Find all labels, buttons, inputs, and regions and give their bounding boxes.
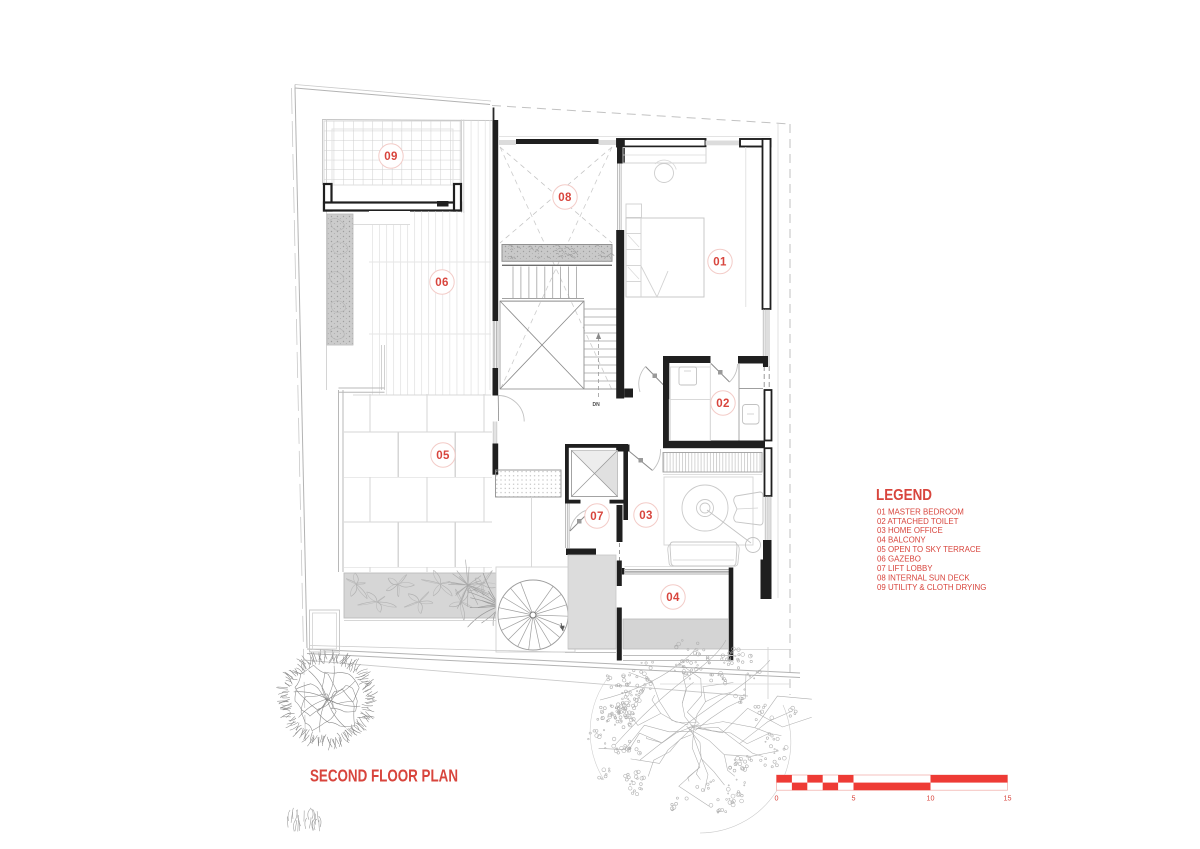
svg-text:08: 08 [558, 192, 572, 204]
svg-text:05: 05 [436, 450, 450, 462]
svg-text:01: 01 [713, 257, 727, 269]
svg-text:08 INTERNAL SUN DECK: 08 INTERNAL SUN DECK [877, 573, 970, 582]
svg-text:01 MASTER BEDROOM: 01 MASTER BEDROOM [877, 507, 964, 516]
svg-text:07: 07 [590, 511, 603, 523]
svg-text:DN: DN [593, 402, 601, 408]
svg-text:SECOND FLOOR PLAN: SECOND FLOOR PLAN [310, 766, 458, 786]
svg-text:10: 10 [927, 794, 935, 803]
svg-text:15: 15 [1004, 794, 1012, 803]
svg-text:03: 03 [639, 510, 652, 522]
svg-text:0: 0 [775, 794, 779, 803]
svg-text:09 UTILITY & CLOTH DRYING: 09 UTILITY & CLOTH DRYING [877, 583, 986, 592]
svg-text:09: 09 [384, 151, 397, 163]
svg-text:02 ATTACHED TOILET: 02 ATTACHED TOILET [877, 517, 959, 526]
svg-text:07 LIFT LOBBY: 07 LIFT LOBBY [877, 564, 933, 573]
svg-text:03 HOME OFFICE: 03 HOME OFFICE [877, 526, 943, 535]
svg-text:06 GAZEBO: 06 GAZEBO [877, 555, 921, 564]
svg-text:LEGEND: LEGEND [876, 487, 932, 504]
svg-text:06: 06 [435, 277, 448, 289]
svg-text:02: 02 [716, 398, 729, 410]
svg-text:5: 5 [852, 794, 856, 803]
svg-text:04 BALCONY: 04 BALCONY [877, 536, 926, 545]
svg-text:04: 04 [666, 592, 680, 604]
svg-text:05 OPEN TO SKY TERRACE: 05 OPEN TO SKY TERRACE [877, 545, 981, 554]
